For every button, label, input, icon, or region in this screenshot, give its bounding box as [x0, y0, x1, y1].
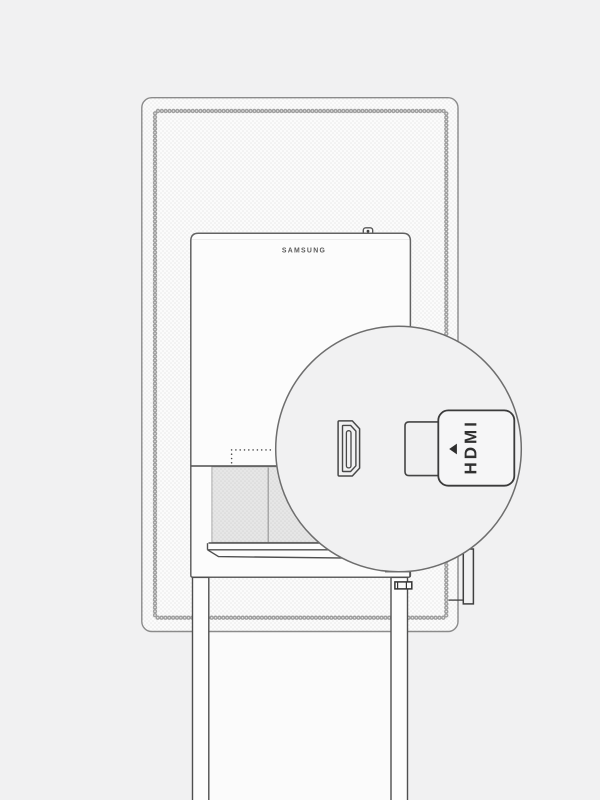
svg-text:SAMSUNG: SAMSUNG — [282, 248, 326, 255]
